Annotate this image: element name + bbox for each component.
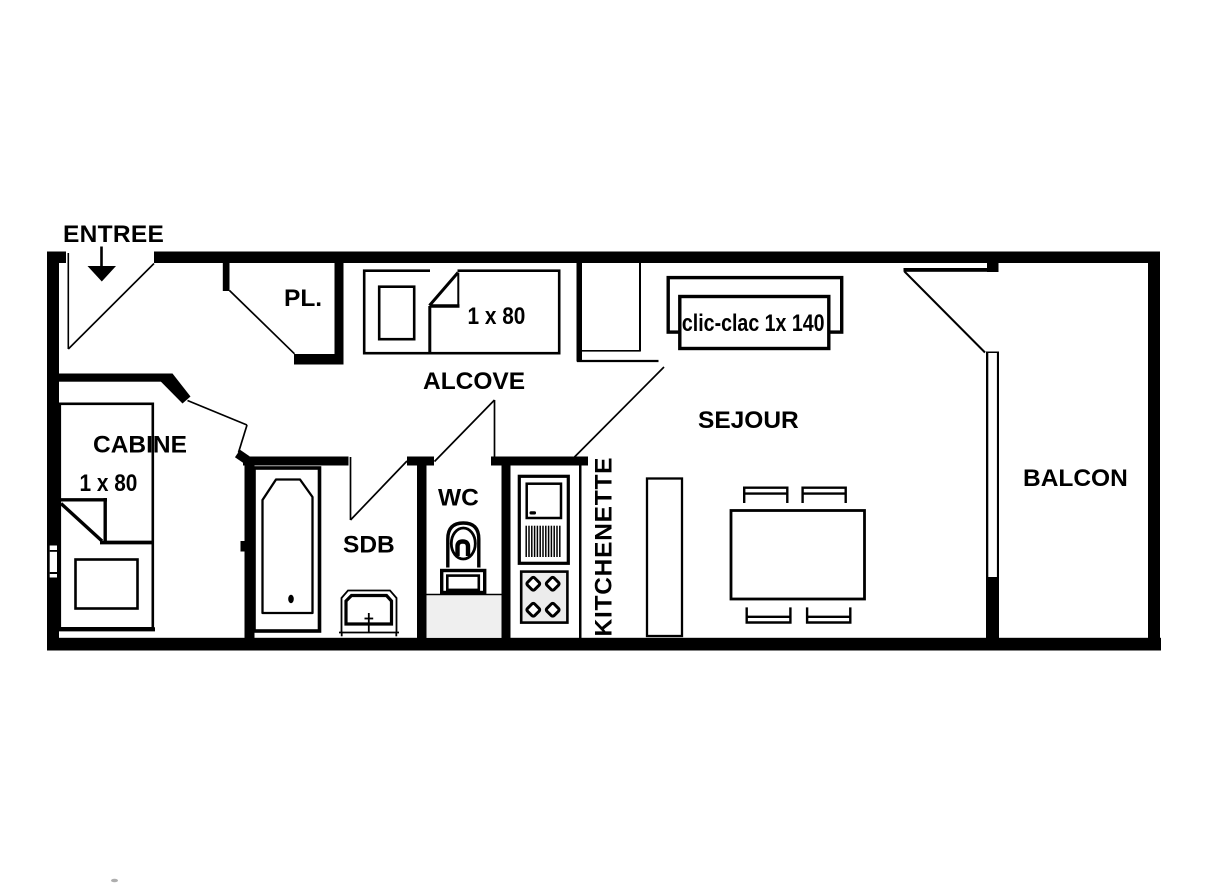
svg-text:SEJOUR: SEJOUR <box>698 407 799 434</box>
svg-text:CABINE: CABINE <box>93 432 187 459</box>
svg-text:PL.: PL. <box>284 285 322 312</box>
svg-text:ENTREE: ENTREE <box>63 221 164 248</box>
svg-text:SDB: SDB <box>343 532 395 559</box>
svg-text:ALCOVE: ALCOVE <box>423 368 525 395</box>
svg-text:KITCHENETTE: KITCHENETTE <box>591 457 618 637</box>
svg-text:1 x 80: 1 x 80 <box>468 301 526 329</box>
svg-text:BALCON: BALCON <box>1023 465 1128 492</box>
svg-text:1 x 80: 1 x 80 <box>80 468 138 496</box>
svg-text:clic-clac 1x 140: clic-clac 1x 140 <box>682 309 825 337</box>
svg-text:WC: WC <box>438 485 479 512</box>
